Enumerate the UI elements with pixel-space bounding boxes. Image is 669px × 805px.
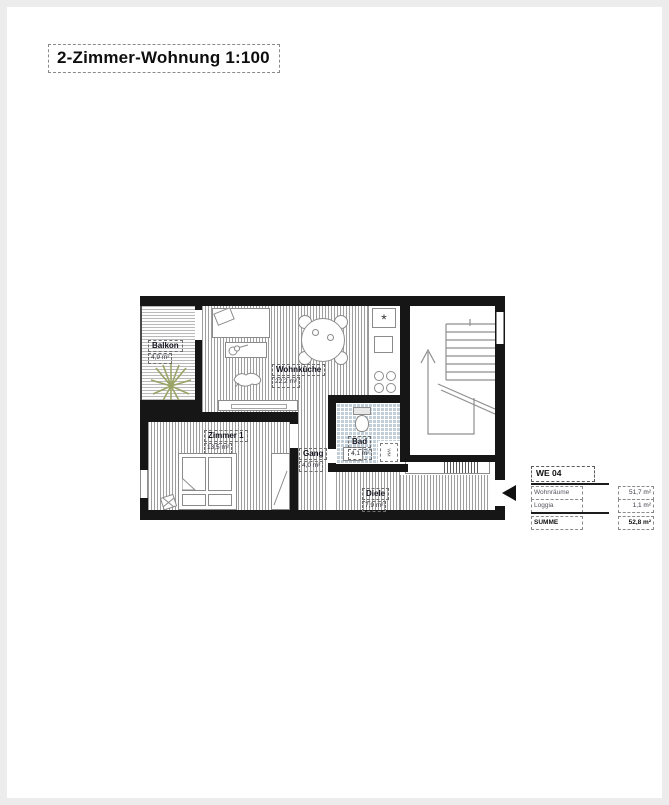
room-name: Diele [362, 488, 389, 500]
row-value: 1,1 m² [618, 499, 654, 513]
table-row: Loggia 1,1 m² [531, 499, 653, 510]
room-label-bad: Bad 4,1 m² [348, 432, 372, 460]
room-name: Bad [348, 436, 371, 448]
room-area: 4,0 m² [299, 461, 323, 472]
freezer-symbol: * [372, 308, 396, 328]
wall-bad-top [328, 395, 408, 403]
wall-left [140, 412, 148, 520]
room-name: Balkon [148, 340, 183, 352]
unit-id: WE 04 [531, 466, 595, 482]
room-area: 22,2 m² [272, 377, 300, 388]
entrance-arrow-icon [502, 485, 516, 501]
frame-right [662, 0, 669, 805]
wall-balkon-bottom [140, 400, 202, 412]
dog-icon [233, 370, 263, 388]
table-row: Wohnräume 51,7 m² [531, 486, 653, 497]
toilet-tank [353, 407, 371, 415]
bed-pillow [182, 494, 206, 506]
frame-top [0, 0, 669, 7]
row-label: Loggia [531, 499, 583, 513]
cup-icon [327, 334, 334, 341]
room-name: Zimmer 1 [204, 430, 248, 442]
guitar-icon [228, 344, 250, 356]
room-label-gang: Gang 4,0 m² [299, 444, 327, 472]
balcony-door-opening [195, 310, 202, 340]
room-area: 13,5 m² [204, 443, 232, 454]
bedroom-door-opening [290, 424, 298, 448]
table-divider [531, 483, 609, 485]
wall-zimmer-top [148, 412, 298, 422]
sideboard [218, 400, 298, 411]
bath-door-opening [328, 449, 336, 463]
wm-label: WM [387, 445, 392, 461]
dining-table [301, 318, 345, 362]
toilet-bowl [355, 415, 369, 432]
wall-top [140, 296, 505, 306]
hob-burner [374, 383, 384, 393]
room-label-diele: Diele 7,9 m² [362, 484, 389, 512]
floor-plan: * + WM [140, 296, 525, 528]
room-area: 7,9 m² [362, 501, 386, 512]
wall-bad-bottom [328, 464, 408, 472]
bedroom-window [140, 470, 148, 498]
row-label: Wohnräume [531, 486, 583, 500]
room-label-balkon: Balkon 4,9 m² [148, 336, 183, 364]
room-area: 4,1 m² [348, 449, 372, 460]
stairs [410, 306, 495, 455]
kitchen-sink [374, 336, 393, 353]
room-name: Wohnküche [272, 364, 325, 376]
blanket-fold [182, 457, 206, 491]
cup-icon [312, 329, 319, 336]
bed-pillow [208, 494, 232, 506]
stool [160, 494, 178, 511]
total-value: 52,8 m² [618, 516, 654, 530]
page: { "title": "2-Zimmer-Wohnung 1:100", "pl… [0, 0, 669, 805]
wardrobe-door-line [271, 453, 290, 510]
diele-floor-right [400, 475, 490, 510]
wall-bottom [140, 510, 505, 520]
washing-machine: WM [380, 443, 398, 462]
frame-bottom [0, 798, 669, 805]
table-row-total: SUMME 52,8 m² [531, 516, 653, 527]
hob-burner [386, 383, 396, 393]
wall-stair-bottom [400, 455, 505, 462]
mattress-right [208, 457, 232, 491]
page-title: 2-Zimmer-Wohnung 1:100 [48, 44, 280, 73]
freezer-star-icon: * [381, 311, 386, 327]
total-label: SUMME [531, 516, 583, 530]
room-name: Gang [299, 448, 327, 460]
hob-burner [386, 371, 396, 381]
wall-stair-left [400, 306, 410, 462]
room-area: 4,9 m² [148, 353, 172, 364]
stairwell-window [496, 312, 504, 344]
room-label-wohnkueche: Wohnküche 22,2 m² [272, 360, 325, 388]
row-value: 51,7 m² [618, 486, 654, 500]
room-label-zimmer1: Zimmer 1 13,5 m² [204, 426, 248, 454]
hob-burner [374, 371, 384, 381]
doormat [444, 461, 478, 473]
frame-left [0, 0, 7, 805]
table-divider-thick [531, 512, 609, 514]
area-table: WE 04 Wohnräume 51,7 m² Loggia 1,1 m² SU… [528, 462, 654, 532]
